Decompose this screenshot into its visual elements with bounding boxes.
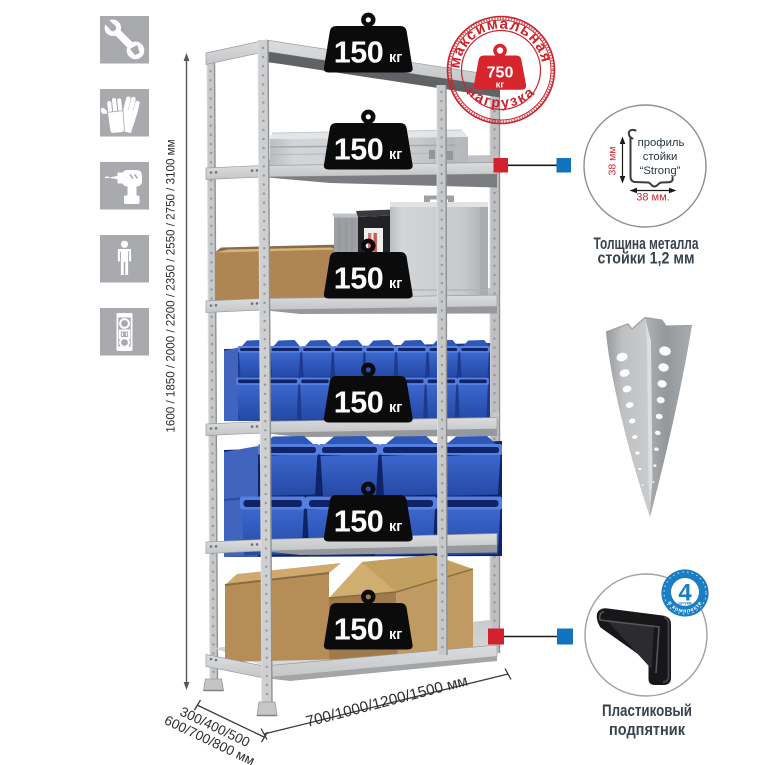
svg-text:подпятник: подпятник — [609, 720, 685, 739]
svg-text:кг: кг — [389, 519, 402, 535]
svg-text:стойки: стойки — [643, 151, 678, 163]
svg-text:150: 150 — [334, 386, 383, 420]
svg-text:“Strong”: “Strong” — [640, 165, 681, 177]
svg-text:150: 150 — [334, 36, 383, 70]
svg-text:профиль: профиль — [638, 137, 685, 149]
svg-text:150: 150 — [334, 613, 383, 647]
svg-text:стойки 1,2 мм: стойки 1,2 мм — [598, 250, 695, 268]
svg-text:кг: кг — [389, 147, 402, 163]
svg-text:1600 / 1850 / 2000 / 2200 / 23: 1600 / 1850 / 2000 / 2200 / 2350 / 2550 … — [165, 139, 178, 432]
svg-text:38 мм: 38 мм — [607, 146, 619, 175]
svg-text:150: 150 — [334, 133, 383, 167]
svg-text:кг: кг — [389, 400, 402, 416]
svg-text:700/1000/1200/1500 мм: 700/1000/1200/1500 мм — [304, 673, 470, 731]
svg-text:38 мм.: 38 мм. — [636, 192, 669, 204]
svg-text:кг: кг — [389, 627, 402, 643]
svg-text:150: 150 — [334, 505, 383, 539]
svg-text:кг: кг — [389, 276, 402, 292]
svg-text:кг: кг — [496, 80, 505, 91]
svg-text:кг: кг — [389, 50, 402, 66]
svg-text:150: 150 — [334, 262, 383, 296]
svg-text:штуки: штуки — [678, 601, 692, 606]
svg-text:Пластиковый: Пластиковый — [602, 701, 692, 720]
